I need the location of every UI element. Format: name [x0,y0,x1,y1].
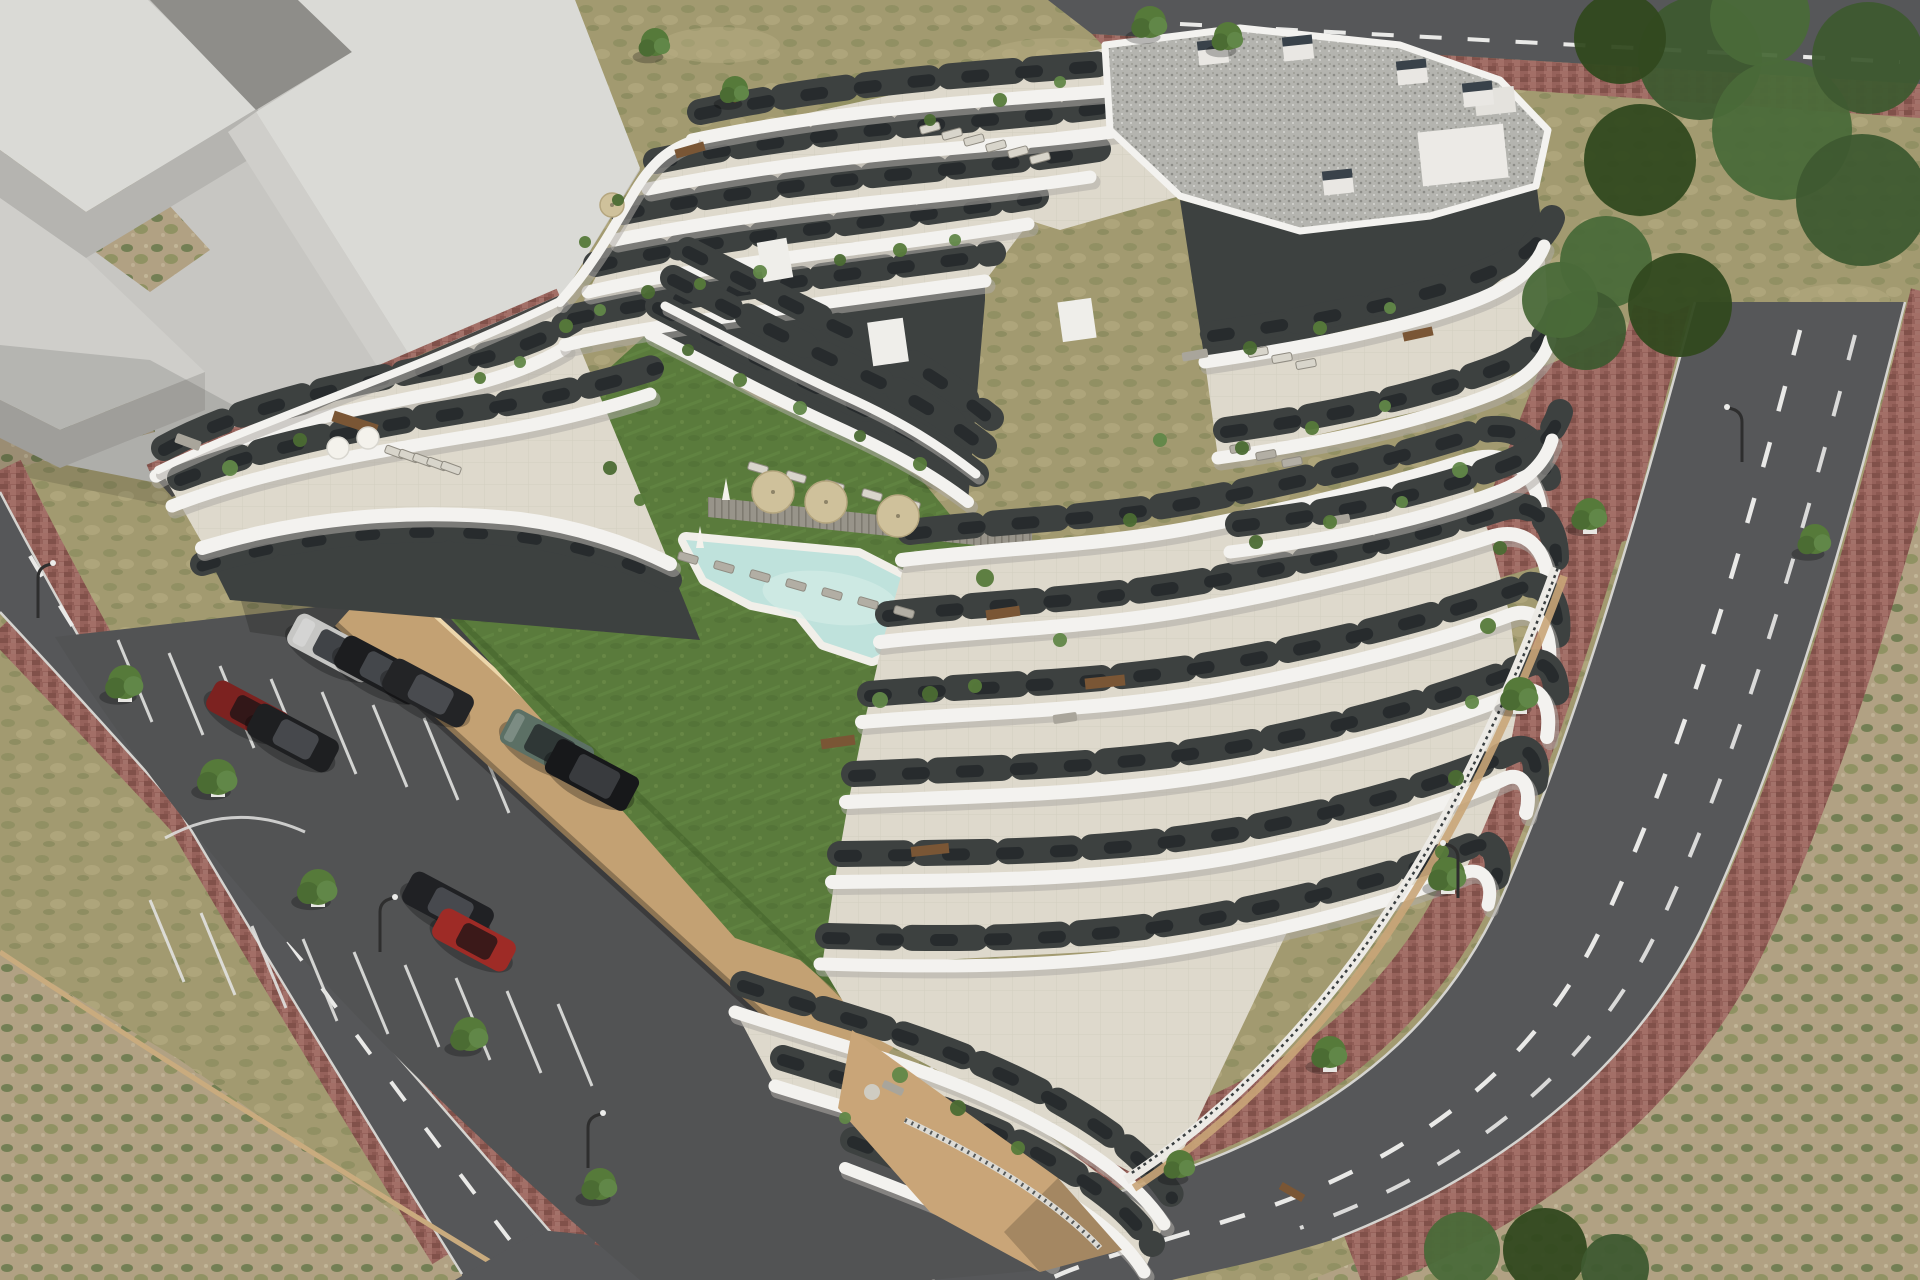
parasol [752,471,794,513]
roof-chimney [1322,168,1354,195]
parasol [877,495,919,537]
terrace-jacuzzi [864,1084,880,1100]
parasol [327,437,349,459]
roof-chimney [1462,80,1494,107]
aerial-render [0,0,1920,1280]
roof-chimney [1396,58,1428,85]
parasol [357,427,379,449]
render-canvas [0,0,1920,1280]
roof-chimney [1282,34,1314,61]
parasol [805,481,847,523]
